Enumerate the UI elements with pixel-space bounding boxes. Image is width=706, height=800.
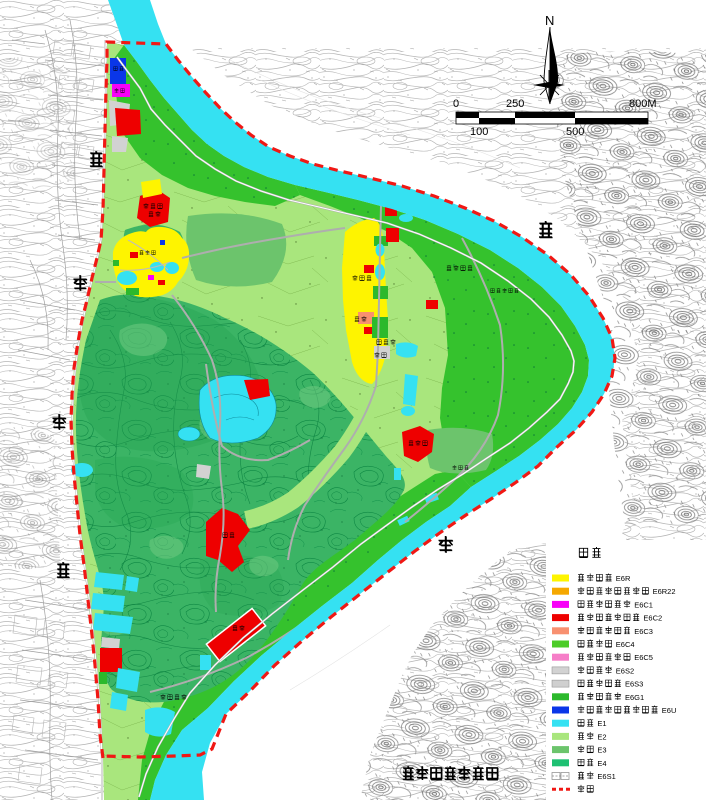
svg-text:E6R: E6R [616,574,631,583]
svg-text:E6S3: E6S3 [625,680,643,689]
svg-text:E6U: E6U [662,706,677,715]
svg-text:E3: E3 [597,746,606,755]
svg-text:800M: 800M [629,98,657,110]
svg-text:E6C3: E6C3 [634,627,653,636]
svg-text:N: N [545,13,554,28]
svg-text:E6G1: E6G1 [625,693,644,702]
svg-text:0: 0 [453,98,459,110]
svg-text:E2: E2 [597,732,606,741]
svg-text:500: 500 [566,126,584,138]
svg-text:E4: E4 [597,759,606,768]
svg-text:E6R22: E6R22 [653,587,676,596]
svg-text:E6C4: E6C4 [616,640,635,649]
svg-text:E6C2: E6C2 [643,614,662,623]
svg-text:E6S1: E6S1 [597,772,615,781]
svg-text:E1: E1 [597,719,606,728]
svg-text:100: 100 [470,126,488,138]
svg-text:E6S2: E6S2 [616,666,634,675]
svg-text:E6C5: E6C5 [634,653,653,662]
svg-text:250: 250 [506,98,524,110]
svg-text:E6C1: E6C1 [634,600,653,609]
